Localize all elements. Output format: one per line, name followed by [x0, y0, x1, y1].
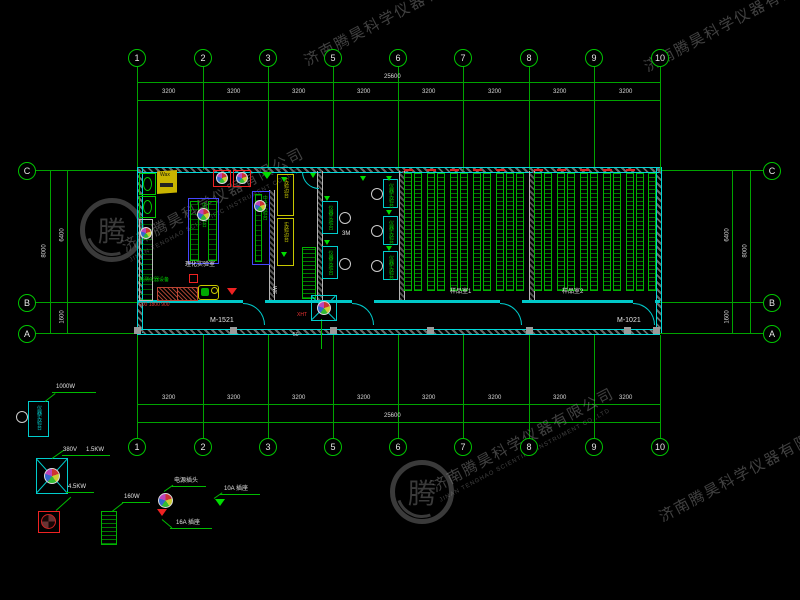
grid-bubble-bottom-7: 7	[454, 438, 472, 456]
grid-bubble-bottom-6: 6	[389, 438, 407, 456]
equipment-note: 监测仪器设备	[139, 278, 169, 283]
pilaster	[330, 327, 337, 334]
grid-bubble-right-C: C	[763, 162, 781, 180]
grid-bubble-right-A: A	[763, 325, 781, 343]
socket-10a-icon	[281, 252, 287, 257]
legend-instrument-bench: 仪器实验台	[28, 401, 49, 437]
fan-symbol-dark	[41, 514, 56, 529]
interior-wall-south	[374, 300, 500, 303]
bench-label: 仪器实验台	[328, 205, 333, 230]
leader-line	[122, 502, 150, 503]
stool	[339, 258, 351, 270]
dim-line-left-bays	[67, 170, 68, 333]
grid-line	[660, 170, 763, 171]
leader-line	[45, 393, 56, 402]
legend-rack-power: 160W	[124, 494, 140, 500]
legend-fan-voltage: 380V	[63, 447, 77, 453]
wash-unit	[139, 173, 156, 195]
bench-label: 仪器实验台	[388, 220, 393, 245]
dim-line-top-total	[137, 82, 660, 83]
equipment-box	[189, 274, 198, 283]
rack-strip	[496, 173, 504, 291]
dim-bay: 3200	[162, 395, 175, 401]
leader-line	[52, 392, 96, 393]
legend-fan-power: 1.5KW	[86, 447, 104, 453]
fan-label: XHT	[297, 313, 307, 318]
storage-rack	[603, 173, 621, 289]
socket-10a-icon	[262, 172, 272, 179]
storage-rack	[534, 173, 552, 289]
bench-label: 实验边台	[283, 222, 288, 242]
grid-bubble-top-3: 3	[259, 49, 277, 67]
grid-line	[463, 335, 464, 438]
dim-line-right-bays	[732, 170, 733, 333]
sink-basin	[201, 288, 209, 296]
rack-strip	[473, 173, 481, 291]
rack-strip	[437, 173, 445, 291]
room-label-mid: 3M	[342, 231, 350, 237]
storage-rack	[473, 173, 491, 289]
bench-shelf	[208, 201, 217, 261]
exterior-wall-east	[656, 167, 662, 333]
rack-strip	[636, 173, 644, 291]
dim-bay: 3200	[357, 89, 370, 95]
socket-16a-icon	[227, 288, 237, 295]
pilaster	[230, 327, 237, 334]
dim-bay: 3200	[292, 395, 305, 401]
rack-strip	[427, 173, 435, 291]
dim-left-ba: 1600	[60, 310, 66, 323]
radiator	[157, 287, 178, 301]
interior-wall-south	[655, 300, 660, 303]
dim-left-cb: 6400	[60, 228, 66, 241]
legend-fan2-power: 4.5KW	[68, 484, 86, 490]
stool	[371, 188, 383, 200]
instrument-bench: 仪器实验台	[383, 251, 398, 280]
instrument-bench: 仪器实验台	[322, 246, 338, 279]
door-arc	[352, 303, 374, 325]
storage-rack	[648, 173, 656, 291]
socket-10a-icon	[324, 240, 330, 245]
leader-line	[220, 494, 260, 495]
instrument-bench: 仪器实验台	[322, 201, 338, 234]
rack-strip	[534, 173, 542, 291]
rack-strip	[450, 173, 458, 291]
wash-unit	[139, 196, 156, 218]
grid-bubble-top-9: 9	[585, 49, 603, 67]
grid-bubble-bottom-2: 2	[194, 438, 212, 456]
rack-strip	[506, 173, 514, 291]
dim-bay: 3200	[162, 89, 175, 95]
grid-line	[137, 335, 138, 438]
leader-line	[170, 528, 212, 529]
dim-bay: 3200	[227, 395, 240, 401]
exterior-wall-south	[137, 329, 660, 335]
socket-10a-icon	[386, 210, 392, 215]
grid-line	[594, 335, 595, 438]
fan-symbol	[216, 172, 228, 184]
socket-10a-icon	[360, 176, 366, 181]
grid-line	[660, 335, 661, 438]
storage-rack	[516, 173, 524, 291]
leader-line	[162, 519, 173, 528]
storage-rack	[626, 173, 644, 289]
rack-strip	[613, 173, 621, 291]
instrument-bench: 仪器实验台	[383, 216, 398, 245]
legend-socket16-icon	[157, 509, 167, 516]
sink	[198, 285, 219, 300]
grid-bubble-bottom-3: 3	[259, 438, 277, 456]
grid-line	[35, 333, 137, 334]
side-bench: 实验边台	[277, 218, 294, 266]
socket-10a-icon	[386, 246, 392, 251]
rack-strip	[414, 173, 422, 291]
rack-strip	[404, 173, 412, 291]
room-label-lab: 理化实验室	[185, 262, 215, 268]
dim-line-top-bays	[137, 100, 660, 101]
watermark-text: 济南腾昊科学仪器有限公司	[655, 412, 800, 526]
grid-bubble-top-6: 6	[389, 49, 407, 67]
grid-line	[268, 335, 269, 438]
socket-10a-icon	[310, 173, 316, 178]
grid-line	[333, 335, 334, 438]
storage-rack	[404, 173, 422, 289]
storage-rack	[580, 173, 598, 289]
wall-cabinet-label: Wax	[160, 173, 170, 178]
dim-bay: 3200	[422, 89, 435, 95]
rack-strip	[580, 173, 588, 291]
grid-line	[660, 66, 661, 170]
leader-line	[66, 492, 94, 493]
dim-bay: 3200	[553, 89, 566, 95]
leader-line	[172, 486, 206, 487]
legend-socket10-icon	[215, 499, 225, 506]
socket-10a-icon	[386, 176, 392, 181]
interior-wall-south	[522, 300, 633, 303]
sink-label: WS	[271, 286, 276, 294]
socket-10a-icon	[281, 177, 287, 182]
sink-tap	[211, 287, 218, 294]
storage-rack	[450, 173, 468, 289]
grid-line	[660, 333, 763, 334]
rack-strip	[483, 173, 491, 291]
rack-strip	[557, 173, 565, 291]
storage-rack	[427, 173, 445, 289]
dim-bay: 3200	[227, 89, 240, 95]
dim-right-cb: 6400	[725, 228, 731, 241]
dim-bay: 3200	[619, 89, 632, 95]
wall-cabinet-slot	[160, 183, 173, 187]
dim-bay: 3200	[488, 395, 501, 401]
grid-bubble-left-A: A	[18, 325, 36, 343]
room-label-sample2: 样品室2	[562, 289, 583, 295]
rack-strip	[544, 173, 552, 291]
grid-bubble-bottom-10: 10	[651, 438, 669, 456]
radiator	[177, 287, 198, 301]
rack-strip	[460, 173, 468, 291]
pilaster	[526, 327, 533, 334]
plug-symbol	[158, 493, 173, 508]
door-label-right: M-1021	[617, 317, 641, 324]
instrument-bench: 仪器实验台	[383, 179, 398, 208]
storage-rack	[557, 173, 575, 289]
legend-rack	[101, 511, 117, 545]
dim-total-top: 25600	[384, 74, 401, 80]
interior-wall-south	[265, 300, 352, 303]
legend-stool	[16, 411, 28, 423]
dim-right-ba: 1600	[725, 310, 731, 323]
grid-bubble-top-5: 5	[324, 49, 342, 67]
rack-strip	[590, 173, 598, 291]
pilaster	[134, 327, 141, 334]
duct-line	[321, 319, 322, 349]
rack-strip	[603, 173, 611, 291]
dim-bay: 3200	[619, 395, 632, 401]
stool	[371, 225, 383, 237]
bench-label: 仪器实验台	[328, 250, 333, 275]
room-label-sample1: 样品室1	[450, 289, 471, 295]
dim-bay: 3200	[422, 395, 435, 401]
dim-line-left-total	[50, 170, 51, 333]
dim-bay: 3200	[488, 89, 501, 95]
grid-line	[203, 335, 204, 438]
grid-bubble-left-B: B	[18, 294, 36, 312]
pilaster	[624, 327, 631, 334]
leader-line	[62, 455, 110, 456]
dim-bay: 3200	[553, 395, 566, 401]
legend-plug-label: 电源插头	[174, 478, 198, 484]
grid-bubble-top-10: 10	[651, 49, 669, 67]
fan-symbol	[317, 301, 331, 315]
grid-bubble-top-1: 1	[128, 49, 146, 67]
dim-right-total: 8000	[743, 244, 749, 257]
stool	[371, 260, 383, 272]
grid-bubble-bottom-1: 1	[128, 438, 146, 456]
grid-bubble-top-2: 2	[194, 49, 212, 67]
wall-cabinet: Wax	[157, 170, 177, 194]
grid-bubble-left-C: C	[18, 162, 36, 180]
bench-label: 仪器实验台	[388, 255, 393, 280]
grid-bubble-bottom-8: 8	[520, 438, 538, 456]
grid-bubble-top-7: 7	[454, 49, 472, 67]
dim-total-bottom: 25600	[384, 413, 401, 419]
cad-drawing-canvas[interactable]: 腾 济南腾昊科学仪器有限公司 JINAN TENGHAO SCIENTIFIC …	[0, 0, 800, 600]
small-dim: 50	[293, 333, 299, 338]
fan-symbol	[44, 468, 60, 484]
dim-line-right-total	[750, 170, 751, 333]
fan-symbol	[236, 172, 248, 184]
socket-10a-icon	[324, 196, 330, 201]
dim-chain-red: 900 1800 900	[139, 303, 170, 308]
door-arc	[500, 303, 522, 325]
door-label-left: M-1521	[210, 317, 234, 324]
dim-left-total: 8000	[42, 244, 48, 257]
wash-unit-fan	[143, 200, 152, 214]
leader-line	[56, 497, 72, 511]
bench-label: 仪器实验台	[388, 183, 393, 208]
partition-wall	[317, 171, 323, 300]
grid-bubble-top-8: 8	[520, 49, 538, 67]
legend-socket16-label: 16A 插座	[176, 520, 200, 526]
storage-rack	[496, 173, 514, 289]
dim-bay: 3200	[292, 89, 305, 95]
fan-symbol	[254, 200, 266, 212]
grid-bubble-right-B: B	[763, 294, 781, 312]
leader-line	[112, 502, 124, 511]
legend-bench-power: 1000W	[56, 384, 75, 390]
pilaster	[653, 327, 660, 334]
legend-bench-text: 仪器实验台	[36, 405, 41, 430]
rack-strip	[626, 173, 634, 291]
fan-symbol	[140, 227, 152, 239]
watermark-cn: 济南腾昊科学仪器有限公司	[656, 415, 800, 526]
pilaster	[427, 327, 434, 334]
wash-unit-fan	[143, 177, 152, 191]
legend-socket10-label: 10A 插座	[224, 486, 248, 492]
grid-line	[398, 335, 399, 438]
dim-bay: 3200	[357, 395, 370, 401]
rack-strip	[567, 173, 575, 291]
door-arc	[243, 303, 265, 325]
stool	[339, 212, 351, 224]
equipment-rack	[302, 247, 316, 299]
fan-symbol	[197, 208, 210, 221]
grid-line	[660, 302, 763, 303]
grid-bubble-bottom-5: 5	[324, 438, 342, 456]
grid-bubble-bottom-9: 9	[585, 438, 603, 456]
